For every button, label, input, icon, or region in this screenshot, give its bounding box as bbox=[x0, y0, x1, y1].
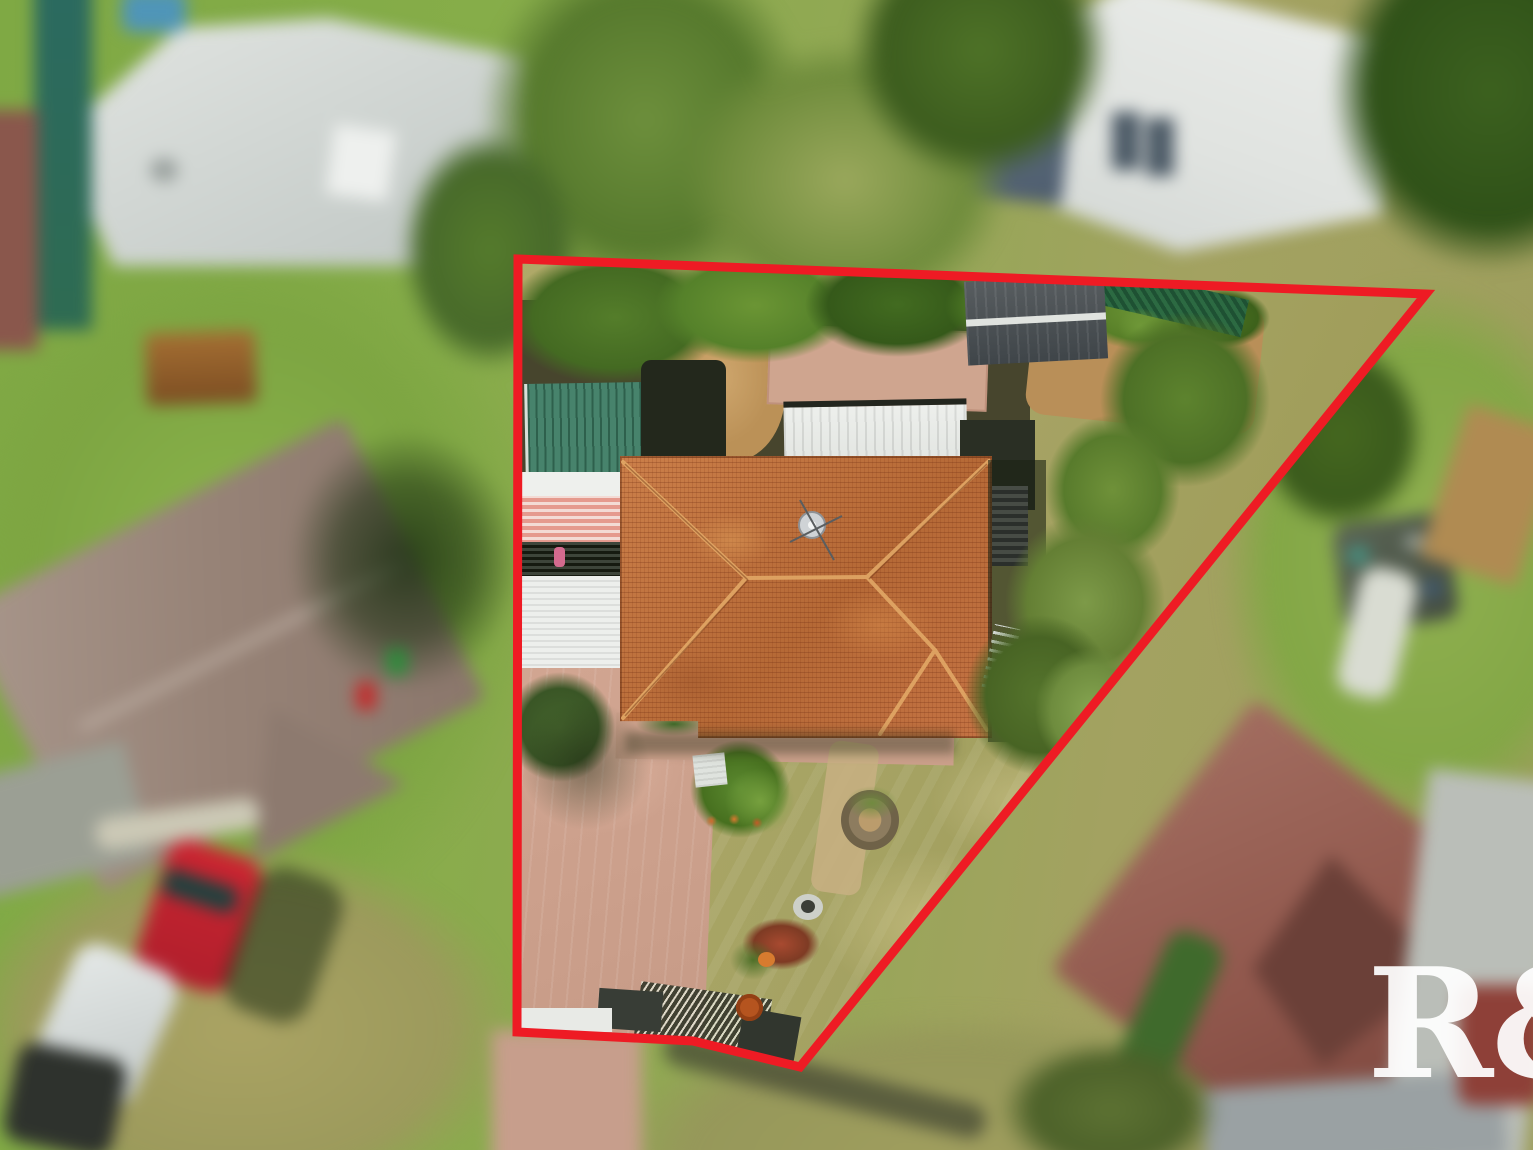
boundary-outline bbox=[517, 259, 1426, 1067]
boundary-overlay bbox=[0, 0, 1533, 1150]
agency-watermark: R& bbox=[1367, 948, 1533, 1100]
aerial-property-photo: R& bbox=[0, 0, 1533, 1150]
